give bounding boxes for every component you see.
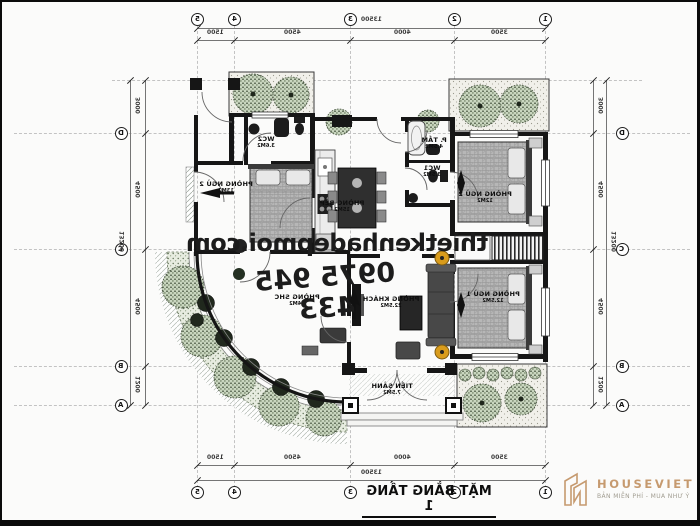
room-area: 3.5M2 bbox=[394, 173, 471, 179]
room-label-9: TIỀN SẢNH7.5M2 bbox=[347, 383, 437, 397]
room-area: 13M2 bbox=[188, 189, 265, 195]
room-label-5: PHÒNG NGỦ 212M2 bbox=[440, 191, 530, 205]
logo-name: HOUSEVIET bbox=[597, 477, 694, 491]
room-area: 12.5M2 bbox=[455, 299, 532, 305]
room-label-4: WC13.5M2 bbox=[387, 165, 477, 179]
watermark-site: thietkenhadepmoi.com bbox=[230, 229, 488, 257]
room-label-0: WC23.6M2 bbox=[221, 136, 311, 150]
room-label-7: PHÒNG NGỦ 112.5M2 bbox=[448, 291, 538, 305]
houseviet-logo: HOUSEVIET BẢN MIỄN PHÍ - MUA NHƯ Ý bbox=[562, 468, 700, 508]
logo-tagline: BẢN MIỄN PHÍ - MUA NHƯ Ý bbox=[597, 493, 694, 500]
room-label-2: PHÒNG BẾP15M2 bbox=[297, 200, 387, 214]
room-area: 7.5M2 bbox=[354, 391, 431, 397]
drawing-subtitle: TỔNG DIỆN TÍCH 139M2 bbox=[362, 521, 496, 526]
blueprint-canvas: 5544332211DDCCBBAA1350015004500400035001… bbox=[0, 0, 700, 526]
title-block: MẶT BẰNG TẦNG 1 TỔNG DIỆN TÍCH 139M2 bbox=[362, 484, 496, 526]
room-label-1: PHÒNG NGỦ 213M2 bbox=[181, 181, 271, 195]
room-area: 4.5M2 bbox=[396, 145, 473, 151]
watermark-phone: 0975 945 433 bbox=[236, 256, 416, 330]
houseviet-logo-icon bbox=[562, 468, 592, 508]
drawing-title: MẶT BẰNG TẦNG 1 bbox=[362, 484, 496, 518]
room-area: 15M2 bbox=[304, 208, 381, 214]
room-area: 12M2 bbox=[447, 199, 524, 205]
room-area: 3.6M2 bbox=[228, 144, 305, 150]
room-label-3: P. TẮM4.5M2 bbox=[389, 137, 479, 151]
